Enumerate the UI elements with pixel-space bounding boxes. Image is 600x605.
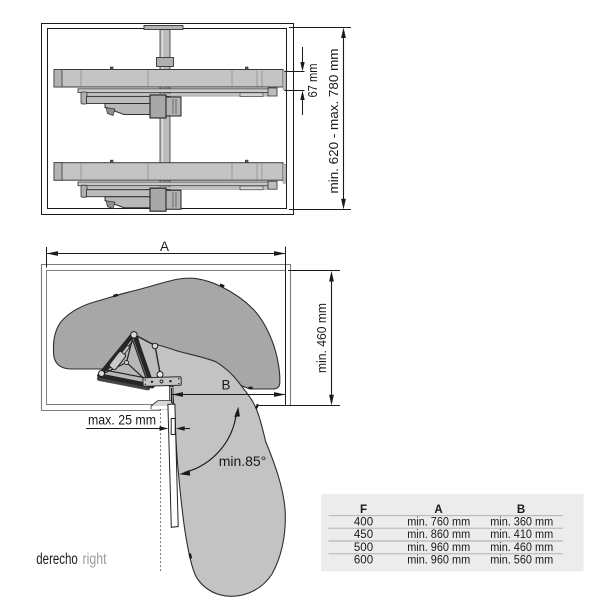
svg-text:max. 25 mm: max. 25 mm bbox=[88, 413, 156, 428]
svg-text:450: 450 bbox=[354, 529, 373, 541]
svg-text:min. 460 mm: min. 460 mm bbox=[490, 542, 553, 554]
svg-text:67 mm: 67 mm bbox=[305, 64, 320, 98]
svg-text:min. 760 mm: min. 760 mm bbox=[407, 516, 470, 528]
svg-text:600: 600 bbox=[354, 555, 373, 567]
svg-text:min. 620 - max. 780 mm: min. 620 - max. 780 mm bbox=[326, 49, 341, 194]
svg-text:derecho: derecho bbox=[36, 551, 78, 568]
svg-text:min. 960 mm: min. 960 mm bbox=[407, 555, 470, 567]
svg-text:B: B bbox=[517, 504, 525, 516]
svg-text:A: A bbox=[434, 504, 442, 516]
svg-text:min. 460 mm: min. 460 mm bbox=[314, 303, 329, 373]
svg-text:400: 400 bbox=[354, 516, 373, 528]
svg-text:min. 410 mm: min. 410 mm bbox=[490, 529, 553, 541]
svg-text:min. 560 mm: min. 560 mm bbox=[490, 555, 553, 567]
svg-text:min. 860 mm: min. 860 mm bbox=[407, 529, 470, 541]
svg-text:min.85°: min.85° bbox=[219, 453, 267, 469]
svg-text:min. 360 mm: min. 360 mm bbox=[490, 516, 553, 528]
svg-text:500: 500 bbox=[354, 542, 373, 554]
svg-text:B: B bbox=[221, 378, 230, 393]
svg-text:A: A bbox=[160, 239, 169, 254]
svg-text:right: right bbox=[83, 551, 108, 568]
svg-text:min. 960 mm: min. 960 mm bbox=[407, 542, 470, 554]
svg-text:F: F bbox=[360, 504, 367, 516]
